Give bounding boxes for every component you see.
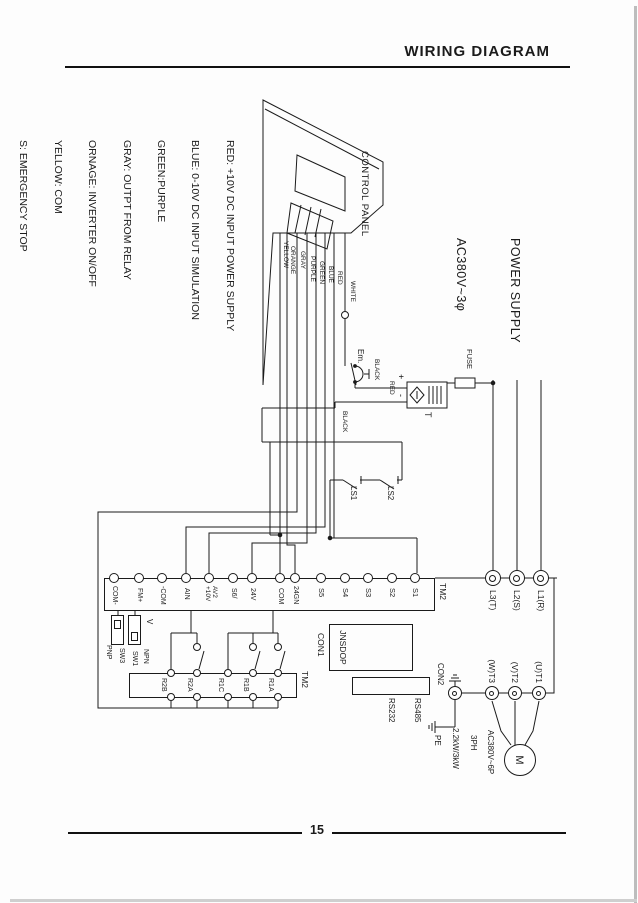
header-rule [65,66,570,68]
terminal-ground-circle [448,686,462,700]
ls-wires [262,442,417,573]
terminal-s5: S5 [317,588,325,597]
terminal-t1-circle [532,686,546,700]
ls1-label: LS1 [349,486,357,500]
terminal-circle [290,573,300,583]
terminal-t2-circle [508,686,522,700]
dc-plus-label: + [396,374,405,379]
transformer-label: T [423,412,432,418]
power-supply-voltage: AC380V~3φ [447,238,474,343]
terminal-circle [134,573,144,583]
wire-red-dc-label: RED [387,381,394,395]
footer-rule-right [332,832,566,834]
terminal-l3-label: L3(T) [488,590,497,610]
terminal-strip-tm2 [104,578,435,611]
relay-arm-circle [274,643,282,651]
relay-r1a: R1A [267,678,274,692]
terminal-l2-circle [509,570,525,586]
relay-block-name: TM2 [300,671,309,688]
relay-contact-circle [274,669,282,677]
relay-r2b: R2B [160,678,167,692]
dip-sw1-label: SW1 [131,651,138,666]
terminal-l1-label: L1(R) [536,590,545,611]
terminal-mcom: -COM [159,586,166,605]
scan-edge-right [634,6,637,903]
fuse-label: FUSE [465,349,473,369]
pe-label: PE [433,735,441,746]
wire-green-label: GREEN [317,261,324,284]
ls2-label: LS2 [386,486,394,500]
wire-white-label: WHITE [348,281,355,302]
rs485-label: RS485 [413,698,421,722]
fuse-icon [455,378,475,388]
color-legend: RED: +10V DC INPUT POWER SUPPLY BLUE: 0-… [0,140,255,365]
rs-port-box [352,677,430,695]
relay-out-circle [193,693,201,701]
relay-r2a: R2A [186,678,193,692]
legend-line: GREEN:PURPLE [152,140,169,365]
relay-out-circle [274,693,282,701]
terminal-l2-label: L2(S) [512,590,521,611]
legend-line: RED: +10V DC INPUT POWER SUPPLY [221,140,238,365]
terminal-circle [387,573,397,583]
power-supply-title: POWER SUPPLY [501,238,528,343]
dip-switch-sw3 [128,615,141,645]
terminal-l1-circle [533,570,549,586]
terminal-fm: FM+ [136,588,143,602]
con2-label: CON2 [436,663,444,685]
relay-out-circle [224,693,232,701]
legend-line: GRAY: OUTPT FROM RELAY [117,140,134,365]
terminal-comminus: COM- [111,586,118,605]
em-stop-label: Em. [356,349,364,363]
terminal-circle [228,573,238,583]
manual-page: WIRING DIAGRAM [0,0,638,903]
terminal-t2-label: (V)T2 [510,643,519,683]
dip-switch-sw1 [111,615,124,645]
terminal-l3-circle [485,570,501,586]
wire-gray-label: GRAY [298,251,305,269]
dc-minus-label: - [396,394,405,397]
relay-arm-circle [193,643,201,651]
terminal-av2: AV2 +10V [204,586,218,601]
relay-out-circle [167,693,175,701]
motor-spec2: 3PH [469,735,477,751]
terminal-24gn: 24GN [292,586,299,604]
terminal-circle [247,573,257,583]
motor-symbol: M [504,744,536,776]
relay-contact-circle [167,669,175,677]
relay-contact-circle [249,669,257,677]
legend-line: ORNAGE: INVERTER ON/OFF [83,140,100,365]
terminal-circle [275,573,285,583]
page-title: WIRING DIAGRAM [400,44,550,60]
motor-spec1: AC380V~6P [486,730,494,774]
terminal-circle [204,573,214,583]
legend-line: BLUE: 0-10V DC INPUT SIMULATION [186,140,203,365]
legend-line: S: EMERGENCY STOP [14,140,31,365]
power-supply-label: POWER SUPPLY AC380V~3φ [420,238,555,343]
terminal-s4: S4 [341,588,349,597]
control-panel-label: CONTROL PANEL [359,151,369,237]
relay-r1c: R1C [217,678,224,692]
legend-line: YELLOW: COM [49,140,66,365]
terminal-circle [181,573,191,583]
terminal-t1-label: (U)T1 [534,643,543,683]
dip-sw3-label: SW3 [118,648,125,663]
wire-purple-label: PURPLE [308,256,315,282]
relay-contact-circle [224,669,232,677]
wire-yellow-label: YELLOW [281,241,288,268]
terminal-strip-name: TM2 [438,583,447,600]
footer-rule-left [68,832,302,834]
dip-npn-label: NPN [142,649,149,664]
terminal-circle [363,573,373,583]
terminal-s3: S3 [364,588,372,597]
scan-edge-bottom [10,899,637,902]
wire-red-label: RED [335,271,342,285]
terminal-t3-circle [485,686,499,700]
wire-black-upper-label: BLACK [372,359,379,380]
terminal-circle [109,573,119,583]
terminal-s1: S1 [411,588,419,597]
page-number: 15 [302,824,332,837]
terminal-circle [316,573,326,583]
dip-pnp-label: PNP [105,645,112,659]
con1-chip-label: JNSDOP [338,626,347,669]
terminal-24v: 24V [249,588,256,600]
motor-spec3: 2.2kW/3kW [451,728,459,769]
wire-orange-label: ORANGE [288,246,295,274]
relay-out-circle [249,693,257,701]
terminal-s2: S2 [388,588,396,597]
relay-arm-circle [249,643,257,651]
relay-r1b: R1B [242,678,249,692]
wire-black-lower-label: BLACK [340,411,347,432]
wire-blue-label: BLUE [326,266,333,283]
dip-v-label: V [145,619,153,624]
white-wire-connector-icon [342,312,349,319]
terminal-t3-label: (W)T3 [487,643,496,683]
rs232-label: RS232 [387,698,395,722]
terminal-s6: S6/ [230,588,237,599]
wiring-diagram: POWER SUPPLY AC380V~3φ L1(R) L2(S) L3(T)… [90,85,607,812]
terminal-circle [157,573,167,583]
relay-contact-circle [193,669,201,677]
terminal-com: COM [277,588,284,604]
terminal-ain: AIN [183,588,190,600]
terminal-circle [410,573,420,583]
con1-label: CON1 [316,633,325,657]
motor-wires [492,701,539,745]
terminal-circle [340,573,350,583]
